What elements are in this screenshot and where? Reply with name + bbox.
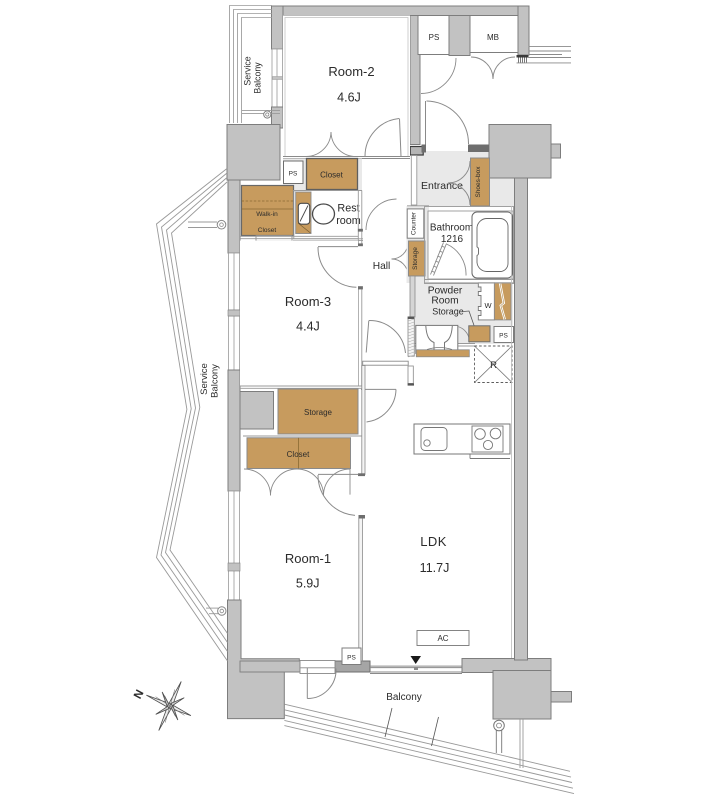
svg-text:Closet: Closet bbox=[287, 450, 310, 459]
svg-text:PS: PS bbox=[289, 171, 298, 178]
svg-text:AC: AC bbox=[437, 634, 448, 643]
svg-text:PS: PS bbox=[429, 33, 440, 42]
svg-text:R: R bbox=[490, 360, 497, 371]
svg-text:LDK: LDK bbox=[420, 534, 447, 549]
svg-text:Rest: Rest bbox=[337, 203, 359, 215]
svg-text:Closet: Closet bbox=[258, 227, 277, 234]
svg-text:4.6J: 4.6J bbox=[337, 91, 361, 105]
svg-text:11.7J: 11.7J bbox=[420, 561, 450, 575]
svg-text:W: W bbox=[484, 301, 492, 310]
svg-text:Closet: Closet bbox=[320, 171, 343, 180]
svg-text:Room-2: Room-2 bbox=[328, 64, 374, 79]
svg-text:Room: Room bbox=[431, 295, 458, 306]
svg-text:4.4J: 4.4J bbox=[296, 320, 320, 334]
svg-text:PS: PS bbox=[347, 655, 356, 662]
svg-text:Storage: Storage bbox=[432, 307, 464, 317]
svg-text:Balcony: Balcony bbox=[386, 692, 422, 703]
svg-text:Walk-in: Walk-in bbox=[256, 211, 278, 218]
svg-text:Service: Service bbox=[243, 56, 253, 85]
svg-text:Hall: Hall bbox=[373, 261, 391, 272]
svg-text:Storage: Storage bbox=[304, 408, 333, 417]
svg-text:Balcony: Balcony bbox=[210, 364, 221, 398]
svg-text:Entrance: Entrance bbox=[421, 180, 463, 192]
svg-text:5.9J: 5.9J bbox=[296, 577, 320, 591]
svg-text:Room-3: Room-3 bbox=[285, 294, 331, 309]
svg-text:Room-1: Room-1 bbox=[285, 551, 331, 566]
svg-text:1216: 1216 bbox=[441, 234, 464, 245]
svg-text:PS: PS bbox=[499, 333, 508, 340]
svg-text:room: room bbox=[336, 215, 361, 227]
svg-text:Counter: Counter bbox=[411, 211, 418, 235]
svg-text:Shoes-box: Shoes-box bbox=[475, 166, 482, 198]
svg-text:Balcony: Balcony bbox=[253, 62, 263, 94]
svg-text:MB: MB bbox=[487, 33, 499, 42]
svg-text:Storage: Storage bbox=[412, 247, 419, 270]
svg-text:Service: Service bbox=[199, 363, 210, 395]
svg-text:Bathroom: Bathroom bbox=[430, 223, 473, 234]
